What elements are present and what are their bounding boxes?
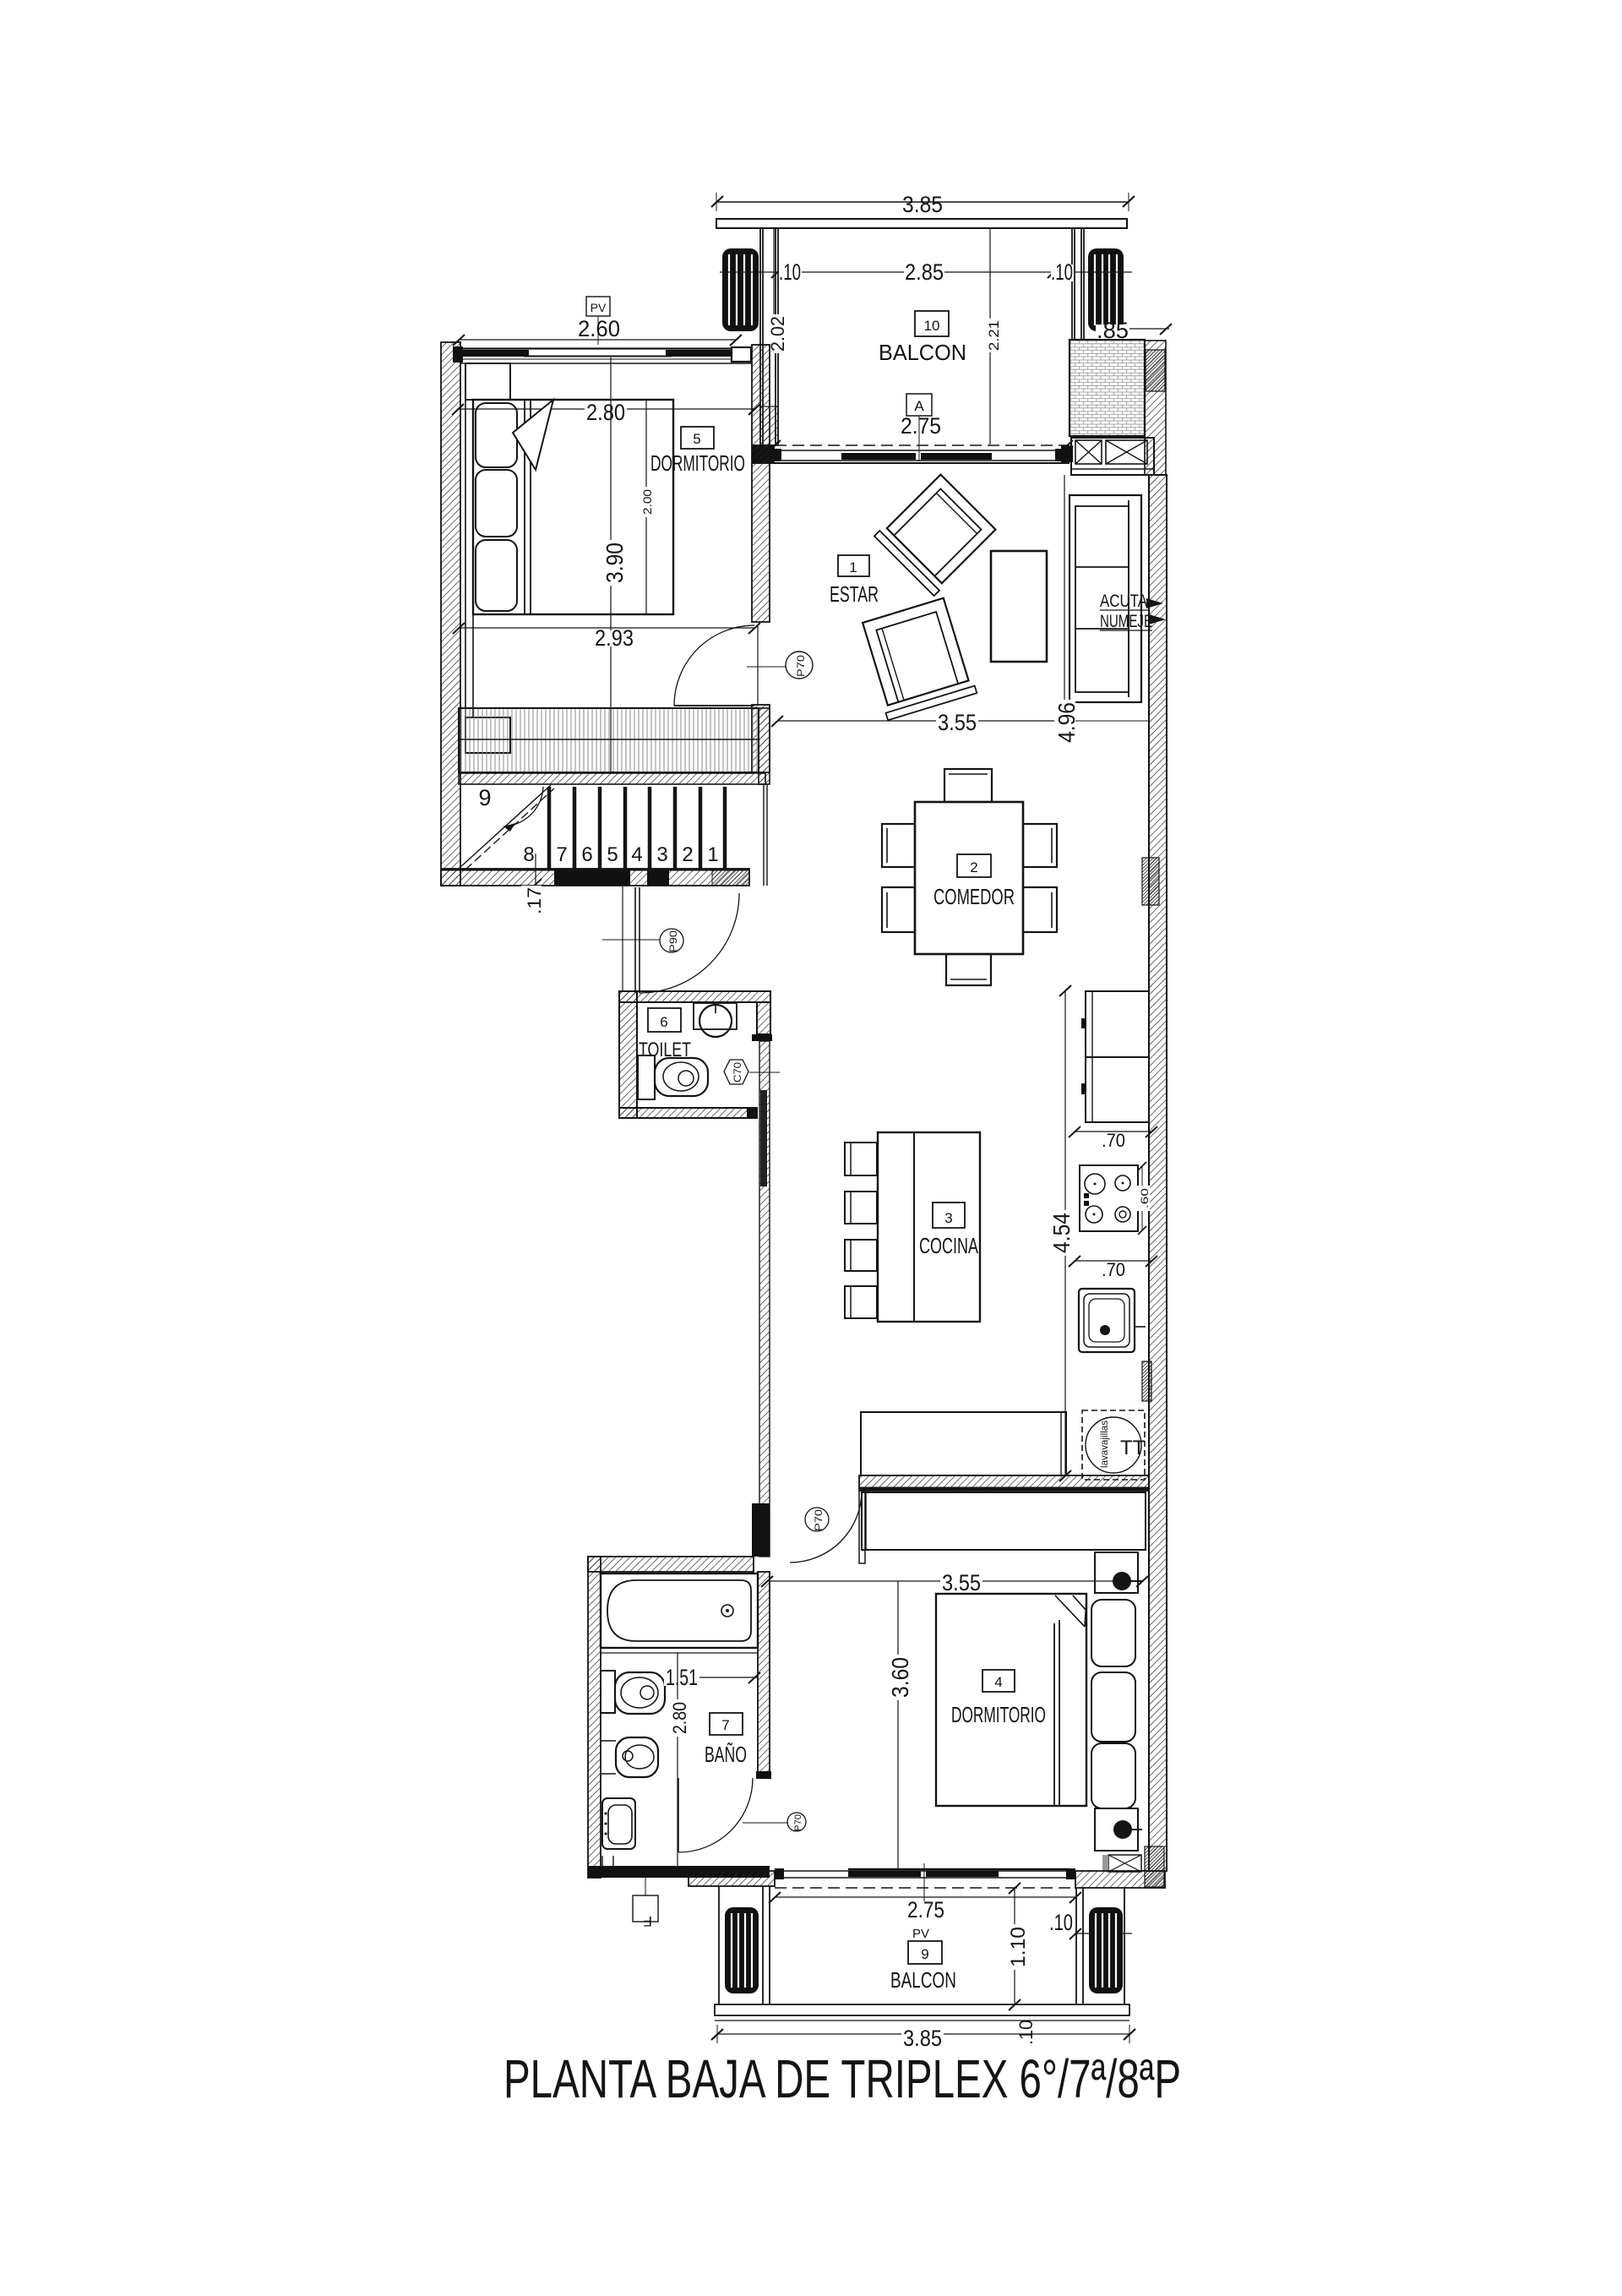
svg-text:PV: PV bbox=[591, 301, 607, 314]
svg-text:8: 8 bbox=[523, 843, 534, 866]
svg-text:9: 9 bbox=[478, 785, 491, 810]
svg-text:1: 1 bbox=[707, 843, 718, 866]
svg-text:2.75: 2.75 bbox=[907, 1897, 944, 1922]
svg-text:2.85: 2.85 bbox=[905, 259, 944, 285]
svg-text:P70: P70 bbox=[793, 1814, 803, 1831]
svg-text:lavavajillas: lavavajillas bbox=[1098, 1421, 1110, 1468]
svg-text:COMEDOR: COMEDOR bbox=[933, 884, 1015, 909]
svg-text:.60: .60 bbox=[1139, 1188, 1151, 1208]
svg-text:.10: .10 bbox=[1051, 259, 1073, 285]
svg-text:BALCON: BALCON bbox=[890, 1967, 956, 1993]
svg-text:6: 6 bbox=[581, 843, 592, 866]
svg-text:ESTAR: ESTAR bbox=[830, 581, 879, 607]
svg-text:2.93: 2.93 bbox=[595, 625, 634, 651]
svg-text:7: 7 bbox=[556, 843, 567, 866]
svg-text:4: 4 bbox=[631, 843, 642, 866]
svg-text:.70: .70 bbox=[1102, 1130, 1125, 1151]
svg-text:NUMEJE: NUMEJE bbox=[1100, 612, 1152, 631]
svg-text:2.75: 2.75 bbox=[901, 413, 941, 439]
svg-text:3.55: 3.55 bbox=[942, 1570, 981, 1595]
svg-text:PV: PV bbox=[912, 1927, 929, 1941]
svg-text:5: 5 bbox=[607, 843, 618, 866]
svg-text:3.85: 3.85 bbox=[903, 2026, 942, 2051]
svg-text:2.00: 2.00 bbox=[640, 489, 654, 515]
svg-text:PLANTA BAJA DE TRIPLEX 6°/7ª/8: PLANTA BAJA DE TRIPLEX 6°/7ª/8ªP bbox=[503, 2048, 1181, 2109]
svg-text:3: 3 bbox=[656, 843, 667, 866]
svg-text:3: 3 bbox=[944, 1210, 952, 1226]
svg-text:DORMITORIO: DORMITORIO bbox=[650, 450, 745, 476]
svg-text:10: 10 bbox=[924, 318, 940, 334]
svg-text:3.90: 3.90 bbox=[601, 543, 628, 583]
svg-text:.10: .10 bbox=[1015, 2020, 1037, 2045]
svg-text:F: F bbox=[644, 1913, 652, 1929]
svg-text:4: 4 bbox=[994, 1674, 1002, 1690]
svg-text:.70: .70 bbox=[1102, 1259, 1125, 1280]
svg-text:3.55: 3.55 bbox=[938, 710, 977, 735]
svg-text:P70: P70 bbox=[795, 655, 807, 677]
svg-text:1.10: 1.10 bbox=[1007, 1927, 1030, 1967]
svg-text:DORMITORIO: DORMITORIO bbox=[951, 1702, 1046, 1727]
svg-text:COCINA: COCINA bbox=[919, 1233, 978, 1258]
svg-text:2.60: 2.60 bbox=[578, 316, 620, 341]
svg-text:.10: .10 bbox=[779, 259, 801, 285]
svg-text:A: A bbox=[914, 398, 924, 414]
svg-text:2.21: 2.21 bbox=[986, 320, 1002, 351]
svg-text:6: 6 bbox=[660, 1014, 667, 1030]
svg-text:BALCON: BALCON bbox=[879, 340, 966, 365]
svg-text:C70: C70 bbox=[732, 1062, 743, 1083]
svg-text:1.51: 1.51 bbox=[666, 1665, 698, 1690]
svg-text:.10: .10 bbox=[1049, 1910, 1073, 1935]
svg-text:2.80: 2.80 bbox=[669, 1702, 690, 1734]
svg-text:4.54: 4.54 bbox=[1048, 1213, 1075, 1253]
svg-text:3.85: 3.85 bbox=[902, 192, 943, 217]
svg-text:.85: .85 bbox=[1097, 318, 1129, 343]
svg-text:P90: P90 bbox=[667, 930, 679, 952]
svg-text:BAÑO: BAÑO bbox=[705, 1742, 747, 1767]
svg-text:.17: .17 bbox=[524, 887, 545, 914]
svg-text:TT: TT bbox=[1120, 1437, 1146, 1459]
svg-text:1: 1 bbox=[849, 559, 857, 575]
svg-text:2: 2 bbox=[970, 859, 977, 875]
svg-text:3.60: 3.60 bbox=[887, 1657, 913, 1698]
svg-text:9: 9 bbox=[921, 1946, 928, 1962]
svg-text:4.96: 4.96 bbox=[1053, 702, 1080, 743]
svg-text:2: 2 bbox=[682, 843, 693, 866]
svg-text:5: 5 bbox=[693, 431, 700, 447]
svg-text:2.80: 2.80 bbox=[586, 400, 625, 425]
svg-text:P70: P70 bbox=[813, 1509, 825, 1531]
svg-text:7: 7 bbox=[721, 1717, 729, 1733]
svg-text:ACUTA: ACUTA bbox=[1100, 592, 1147, 611]
